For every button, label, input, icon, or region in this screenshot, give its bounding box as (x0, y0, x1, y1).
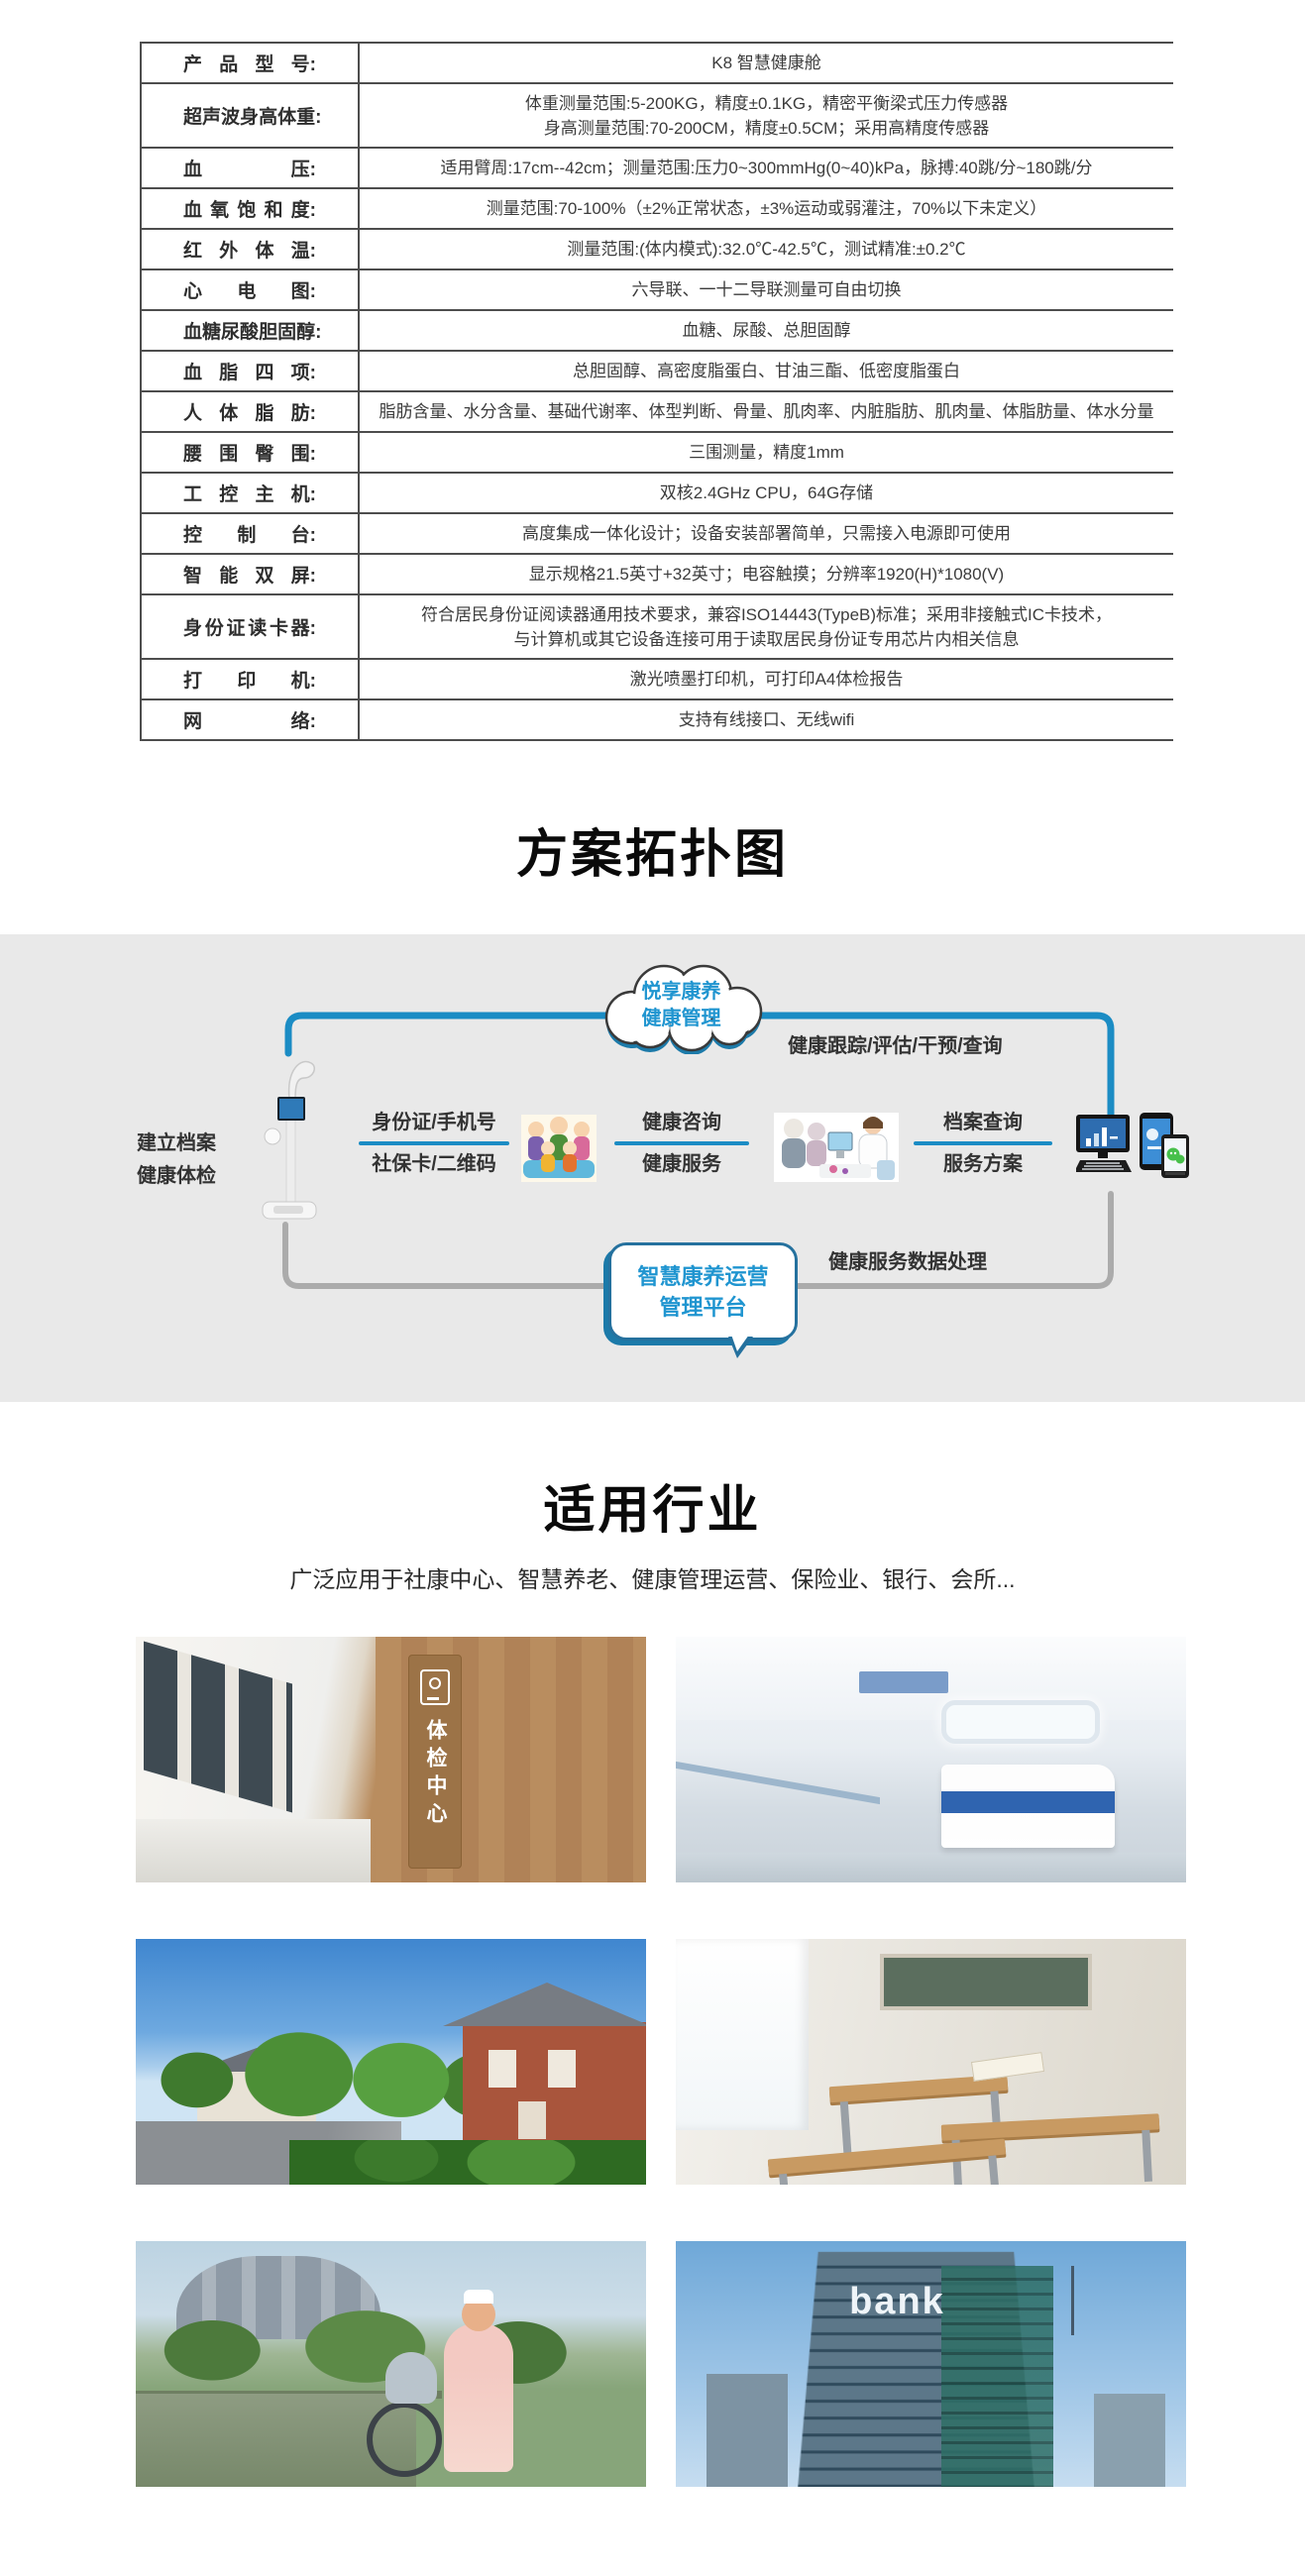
industry-card-bank: bank 银行 (676, 2241, 1186, 2531)
spec-value: 符合居民身份证阅读器通用技术要求，兼容ISO14443(TypeB)标准；采用非… (360, 595, 1173, 658)
hanging-sign (859, 1671, 948, 1693)
cloud-label: 悦享康养 健康管理 (593, 979, 770, 1032)
spec-label: 工控主机: (142, 474, 360, 512)
ceiling-light (941, 1700, 1100, 1744)
spec-label: 人体脂肪: (142, 392, 360, 431)
spec-label: 产品型号: (142, 44, 360, 82)
bank-tower-glass (941, 2266, 1053, 2487)
spec-value: 显示规格21.5英寸+32英寸；电容触摸；分辨率1920(H)*1080(V) (360, 555, 1173, 593)
card-caption: 养老机构 (136, 2487, 646, 2531)
industries-subtitle: 广泛应用于社康中心、智慧养老、健康管理运营、保险业、银行、会所... (0, 1560, 1305, 1594)
spec-row: 智能双屏:显示规格21.5英寸+32英寸；电容触摸；分辨率1920(H)*108… (142, 555, 1173, 595)
spec-label: 心电图: (142, 270, 360, 309)
industry-card-community: 社区 (136, 1939, 646, 2229)
card-photo-community (136, 1939, 646, 2185)
sign-text: 体检中心 (420, 1719, 450, 1830)
pair-bottom-label: 健康服务 (614, 1152, 749, 1176)
spec-label: 超声波身高体重: (142, 84, 360, 147)
spec-label: 红外体温: (142, 230, 360, 268)
spec-label: 血脂四项: (142, 352, 360, 390)
spec-label: 身份证读卡器: (142, 595, 360, 658)
antenna (1071, 2266, 1074, 2335)
corridor-floor (136, 1819, 371, 1882)
industry-cards: 体检中心 健康小屋 医院 社区 (136, 1637, 1186, 2531)
spec-value: 支持有线接口、无线wifi (360, 700, 1173, 739)
spec-label: 智能双屏: (142, 555, 360, 593)
spec-row: 网络:支持有线接口、无线wifi (142, 700, 1173, 741)
industry-card-health-hut: 体检中心 健康小屋 (136, 1637, 646, 1927)
spec-value: 测量范围:(体内模式):32.0℃-42.5℃，测试精准:±0.2℃ (360, 230, 1173, 268)
industry-card-hospital: 医院 (676, 1637, 1186, 1927)
spec-row: 工控主机:双核2.4GHz CPU，64G存储 (142, 474, 1173, 514)
divider-line (614, 1141, 749, 1145)
pair-top-label: 身份证/手机号 (359, 1111, 509, 1134)
spec-value: 血糖、尿酸、总胆固醇 (360, 311, 1173, 350)
card-caption: 医院 (676, 1882, 1186, 1927)
elderly-patient (385, 2352, 437, 2404)
handrail (676, 1762, 880, 1804)
spec-label: 血压: (142, 149, 360, 187)
shrubs (289, 2140, 647, 2185)
divider-line (359, 1141, 509, 1145)
spec-value: 六导联、一十二导联测量可自由切换 (360, 270, 1173, 309)
spec-label: 打印机: (142, 660, 360, 698)
reception-desk (941, 1765, 1115, 1848)
spec-value: 双核2.4GHz CPU，64G存储 (360, 474, 1173, 512)
spec-row: 血脂四项:总胆固醇、高密度脂蛋白、甘油三酯、低密度脂蛋白 (142, 352, 1173, 392)
id-input-methods: 身份证/手机号 社保卡/二维码 (359, 1111, 509, 1176)
side-building (707, 2374, 788, 2487)
card-photo-nursing-home (136, 2241, 646, 2487)
classroom-window (676, 1939, 809, 2130)
health-consult-services: 健康咨询 健康服务 (614, 1111, 749, 1176)
spec-value: K8 智慧健康舱 (360, 44, 1173, 82)
industry-card-school: 学校 (676, 1939, 1186, 2229)
spec-row: 血氧饱和度:测量范围:70-100%（±2%正常状态，±3%运动或弱灌注，70%… (142, 189, 1173, 230)
spec-value: 适用臂周:17cm--42cm；测量范围:压力0~300mmHg(0~40)kP… (360, 149, 1173, 187)
near-house (463, 2022, 646, 2160)
industry-card-nursing-home: 养老机构 (136, 2241, 646, 2531)
card-caption: 银行 (676, 2487, 1186, 2531)
corridor-windows (144, 1641, 292, 1812)
spec-value: 三围测量，精度1mm (360, 433, 1173, 472)
left-flow-label: 建立档案 健康体检 (117, 1127, 236, 1193)
bubble-line1: 智慧康养运营 (637, 1261, 768, 1292)
platform-bubble: 智慧康养运营 管理平台 (608, 1242, 798, 1341)
spec-label: 血氧饱和度: (142, 189, 360, 228)
side-building (1094, 2394, 1165, 2487)
spec-row: 血糖尿酸胆固醇:血糖、尿酸、总胆固醇 (142, 311, 1173, 352)
family-illustration (521, 1115, 597, 1187)
spec-row: 人体脂肪:脂肪含量、水分含量、基础代谢率、体型判断、骨量、肌肉率、内脏脂肪、肌肉… (142, 392, 1173, 433)
bubble-tail-fill (731, 1335, 749, 1351)
consult-illustration (774, 1113, 899, 1187)
spec-label: 控制台: (142, 514, 360, 553)
cloud-shape: 悦享康养 健康管理 (593, 963, 770, 1047)
spec-row: 红外体温:测量范围:(体内模式):32.0℃-42.5℃，测试精准:±0.2℃ (142, 230, 1173, 270)
exam-center-sign: 体检中心 (408, 1655, 462, 1869)
clipboard-icon (420, 1669, 450, 1705)
card-photo-hospital (676, 1637, 1186, 1882)
topology-diagram: 悦享康养 健康管理 建立档案 健康体检 身份证/手机号 社 (0, 934, 1305, 1402)
topology-section-title: 方案拓扑图 (0, 812, 1305, 887)
spec-row: 超声波身高体重:体重测量范围:5-200KG，精度±0.1KG，精密平衡梁式压力… (142, 84, 1173, 149)
divider-line (914, 1141, 1052, 1145)
top-flow-label: 健康跟踪/评估/干预/查询 (788, 1029, 1003, 1058)
card-photo-school (676, 1939, 1186, 2185)
wheelchair (367, 2402, 442, 2477)
spec-row: 身份证读卡器:符合居民身份证阅读器通用技术要求，兼容ISO14443(TypeB… (142, 595, 1173, 660)
pair-top-label: 健康咨询 (614, 1111, 749, 1134)
spec-row: 产品型号:K8 智慧健康舱 (142, 44, 1173, 84)
bottom-flow-label: 健康服务数据处理 (828, 1245, 987, 1274)
school-desk (941, 2114, 1160, 2141)
spec-value: 脂肪含量、水分含量、基础代谢率、体型判断、骨量、肌肉率、内脏脂肪、肌肉量、体脂肪… (360, 392, 1173, 431)
card-photo-bank: bank (676, 2241, 1186, 2487)
card-caption: 健康小屋 (136, 1882, 646, 1927)
blackboard (880, 1954, 1092, 2011)
bank-sign-text: bank (849, 2281, 945, 2323)
spec-label: 血糖尿酸胆固醇: (142, 311, 360, 350)
spec-row: 打印机:激光喷墨打印机，可打印A4体检报告 (142, 660, 1173, 700)
bubble-line2: 管理平台 (659, 1292, 746, 1323)
school-desk (767, 2139, 1005, 2176)
pair-bottom-label: 社保卡/二维码 (359, 1152, 509, 1176)
hospital-floor (676, 1853, 1186, 1882)
devices-illustration (1076, 1113, 1191, 1185)
book (971, 2052, 1044, 2082)
spec-row: 腰围臀围:三围测量，精度1mm (142, 433, 1173, 474)
spec-value: 总胆固醇、高密度脂蛋白、甘油三酯、低密度脂蛋白 (360, 352, 1173, 390)
spec-value: 测量范围:70-100%（±2%正常状态，±3%运动或弱灌注，70%以下未定义） (360, 189, 1173, 228)
spec-label: 网络: (142, 700, 360, 739)
spec-value: 激光喷墨打印机，可打印A4体检报告 (360, 660, 1173, 698)
spec-value: 高度集成一体化设计；设备安装部署简单，只需接入电源即可使用 (360, 514, 1173, 553)
card-caption: 学校 (676, 2185, 1186, 2229)
spec-row: 血压:适用臂周:17cm--42cm；测量范围:压力0~300mmHg(0~40… (142, 149, 1173, 189)
product-detail-page: 产品型号:K8 智慧健康舱 超声波身高体重:体重测量范围:5-200KG，精度±… (0, 0, 1305, 2576)
spec-label: 腰围臀围: (142, 433, 360, 472)
card-photo-health-hut: 体检中心 (136, 1637, 646, 1882)
nurse-figure (444, 2323, 513, 2472)
spec-row: 控制台:高度集成一体化设计；设备安装部署简单，只需接入电源即可使用 (142, 514, 1173, 555)
industries-section-title: 适用行业 (0, 1468, 1305, 1543)
spec-value: 体重测量范围:5-200KG，精度±0.1KG，精密平衡梁式压力传感器 身高测量… (360, 84, 1173, 147)
pair-bottom-label: 服务方案 (914, 1152, 1052, 1176)
pair-top-label: 档案查询 (914, 1111, 1052, 1134)
card-caption: 社区 (136, 2185, 646, 2229)
spec-table: 产品型号:K8 智慧健康舱 超声波身高体重:体重测量范围:5-200KG，精度±… (140, 42, 1173, 741)
kiosk-illustration (260, 1053, 319, 1232)
archive-query-plan: 档案查询 服务方案 (914, 1111, 1052, 1176)
spec-row: 心电图:六导联、一十二导联测量可自由切换 (142, 270, 1173, 311)
